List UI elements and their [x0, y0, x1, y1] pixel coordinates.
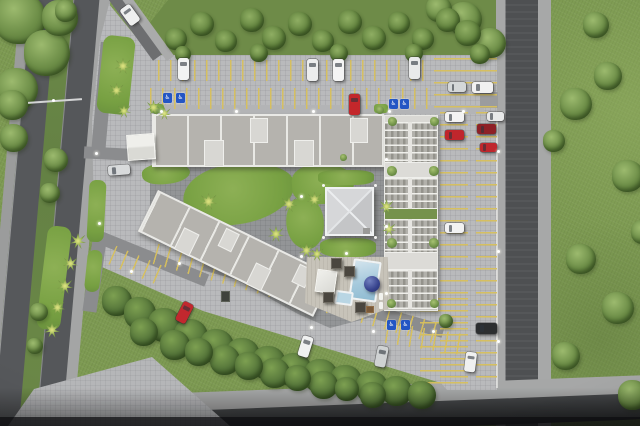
car [445, 112, 464, 122]
handicap-parking-sign: ♿ [389, 99, 398, 109]
lamp-post [497, 250, 500, 253]
car [409, 57, 420, 79]
car-windshield [309, 63, 317, 67]
handicap-parking-sign: ♿ [163, 93, 172, 103]
car-windshield [335, 63, 343, 67]
lamp-post [385, 225, 388, 228]
car-windshield [467, 356, 475, 360]
lamp-post [385, 292, 388, 295]
car-windshield [180, 62, 188, 66]
car-windshield [483, 144, 486, 150]
car [119, 3, 140, 26]
car-windshield [452, 84, 455, 91]
car-windshield [112, 167, 116, 174]
car-windshield [449, 132, 452, 139]
lamp-post [462, 110, 465, 113]
car [108, 164, 131, 176]
lamp-post [300, 195, 303, 198]
lamp-post [310, 326, 313, 329]
lamp-post [385, 158, 388, 161]
car-windshield [481, 126, 484, 133]
car [175, 301, 194, 325]
lamp-post [432, 330, 435, 333]
car-windshield [351, 98, 359, 101]
car [480, 143, 497, 152]
car-windshield [476, 84, 479, 92]
car [464, 351, 477, 372]
car [487, 112, 504, 121]
car-windshield [303, 339, 311, 344]
car-windshield [449, 225, 452, 232]
lamp-post [372, 330, 375, 333]
render-stamp-bar: 0h 30m 25.2s | [0, 417, 640, 426]
car-windshield [411, 61, 419, 65]
lamp-post [160, 110, 163, 113]
lamp-post [98, 222, 101, 225]
car-windshield [378, 350, 386, 355]
lamp-post [300, 255, 303, 258]
car [374, 345, 389, 368]
handicap-parking-sign: ♿ [176, 93, 185, 103]
handicap-parking-sign: ♿ [400, 99, 409, 109]
lamp-post [497, 340, 500, 343]
car [445, 130, 464, 140]
aerial-site-render: ♿♿♿♿♿♿ 0h 30m 25.2s | [0, 0, 640, 426]
props-layer: ♿♿♿♿♿♿ [0, 0, 640, 426]
lamp-post [345, 252, 348, 255]
car [445, 223, 464, 233]
car [349, 94, 360, 115]
lamp-post [312, 110, 315, 113]
car-windshield [449, 114, 452, 121]
handicap-parking-sign: ♿ [387, 320, 396, 330]
lamp-post [95, 152, 98, 155]
lamp-post [235, 110, 238, 113]
lamp-post [178, 262, 181, 265]
lamp-post [497, 150, 500, 153]
car [477, 124, 496, 134]
car-windshield [490, 113, 493, 119]
car [333, 59, 344, 81]
car [307, 59, 318, 81]
street-light-lamp [52, 99, 55, 102]
car [448, 82, 466, 92]
car-windshield [123, 8, 132, 16]
car [476, 323, 497, 334]
car-windshield [182, 305, 190, 311]
handicap-parking-sign: ♿ [401, 320, 410, 330]
car [297, 335, 314, 358]
car [472, 82, 493, 93]
car-windshield [480, 325, 483, 333]
car [178, 58, 189, 80]
lamp-post [388, 110, 391, 113]
lamp-post [130, 270, 133, 273]
